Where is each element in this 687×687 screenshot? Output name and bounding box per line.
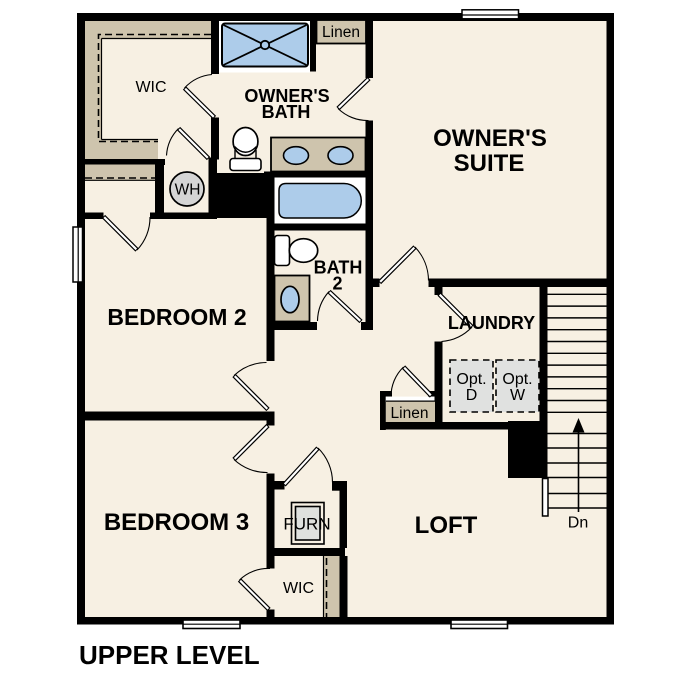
svg-text:Linen: Linen	[391, 405, 429, 422]
svg-text:LAUNDRY: LAUNDRY	[448, 313, 535, 333]
svg-text:2: 2	[332, 274, 342, 294]
svg-text:Dn: Dn	[568, 515, 588, 532]
svg-text:BEDROOM 2: BEDROOM 2	[107, 304, 246, 330]
svg-text:LOFT: LOFT	[415, 512, 478, 539]
svg-text:Linen: Linen	[322, 24, 360, 41]
svg-text:FURN: FURN	[283, 515, 330, 534]
svg-text:UPPER LEVEL: UPPER LEVEL	[79, 640, 260, 670]
svg-text:SUITE: SUITE	[454, 150, 525, 177]
svg-text:OWNER'S: OWNER'S	[433, 125, 547, 152]
svg-text:BATH: BATH	[262, 102, 311, 122]
svg-text:WH: WH	[175, 182, 201, 199]
svg-text:WIC: WIC	[283, 580, 314, 597]
svg-text:WIC: WIC	[135, 79, 166, 96]
svg-text:BEDROOM 3: BEDROOM 3	[104, 509, 249, 536]
svg-text:W: W	[510, 387, 526, 404]
svg-text:Opt.: Opt.	[502, 371, 532, 388]
svg-text:D: D	[466, 387, 478, 404]
svg-text:Opt.: Opt.	[456, 371, 486, 388]
